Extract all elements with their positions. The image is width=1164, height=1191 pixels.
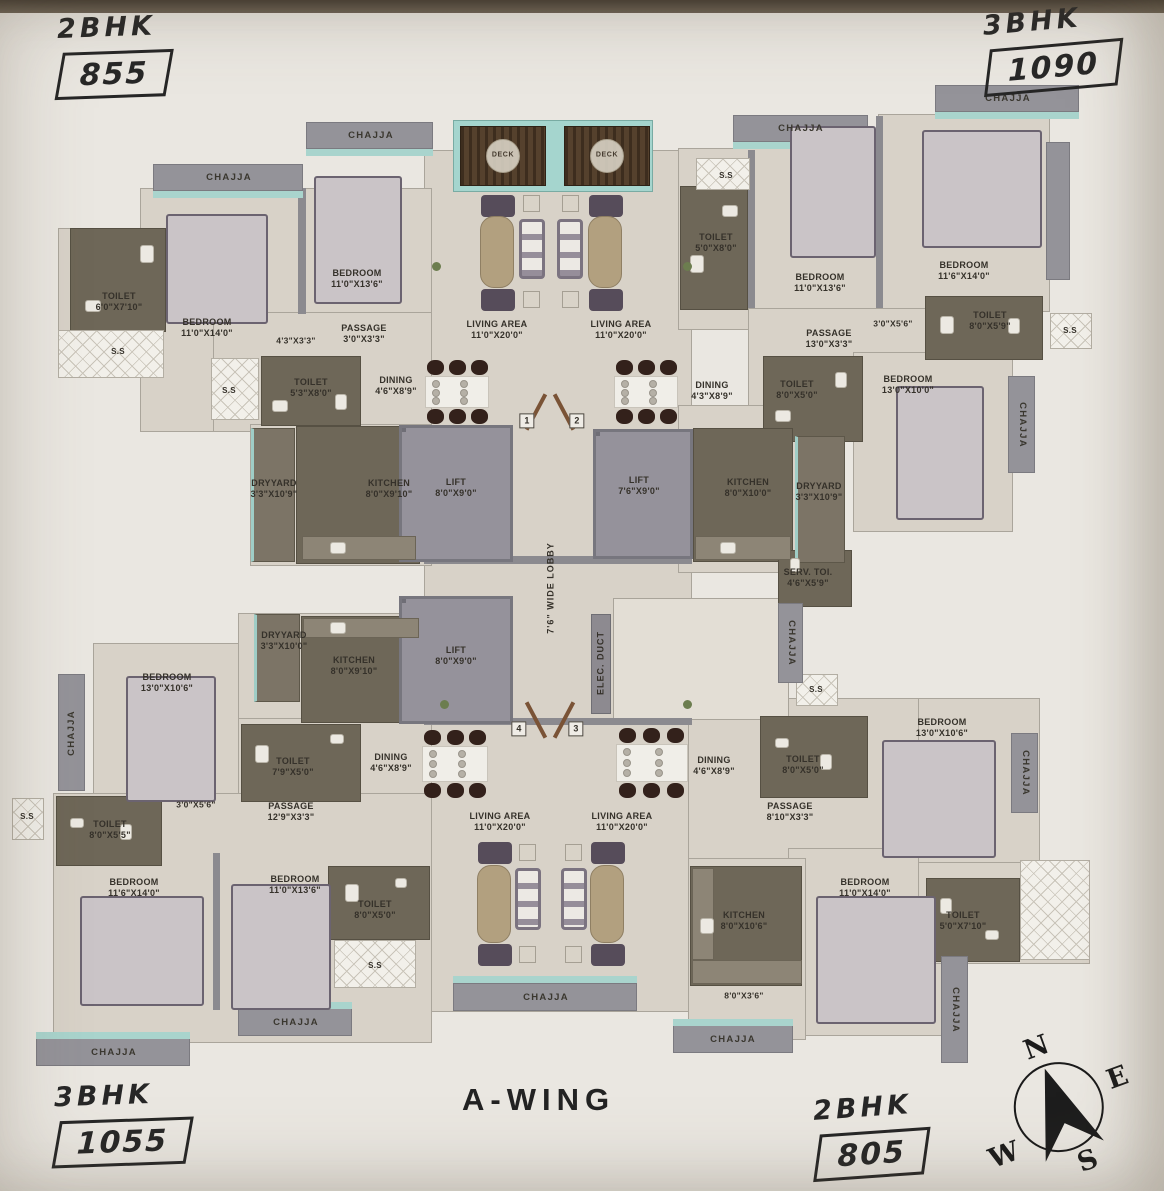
label-line: S.S xyxy=(111,347,125,357)
label-4-73: 4 xyxy=(511,721,526,736)
label-line: 6'0"X7'10" xyxy=(96,302,143,313)
label-line: DRYYARD xyxy=(796,481,843,492)
label-chajja-1: CHAJJA xyxy=(348,130,394,142)
label-line: CHAJJA xyxy=(66,710,78,756)
label-line: 11'6"X14'0" xyxy=(938,271,990,282)
label-line: 11'0"X20'0" xyxy=(467,330,528,341)
label-line: 11'0"X14'0" xyxy=(181,328,233,339)
label-line: 3'3"X10'9" xyxy=(251,489,298,500)
plan-labels-layer: CHAJJACHAJJACHAJJACHAJJACHAJJACHAJJACHAJ… xyxy=(0,0,1164,1191)
label-toilet-62: TOILET8'0"X5'0" xyxy=(782,754,824,777)
label-line: 11'0"X13'6" xyxy=(331,279,383,290)
label-line: PASSAGE xyxy=(806,328,853,339)
label-passage-39: PASSAGE13'0"X3'3" xyxy=(806,328,853,351)
label-line: TOILET xyxy=(290,377,332,388)
label-line: TOILET xyxy=(354,899,396,910)
label-line: 4'3"X3'3" xyxy=(276,336,315,347)
label-toilet-67: TOILET5'0"X7'10" xyxy=(940,910,987,933)
label-line: TOILET xyxy=(776,379,818,390)
label-chajja-5: CHAJJA xyxy=(273,1017,319,1029)
label-3-74: 3 xyxy=(568,721,583,736)
label-dining-52: DINING4'6"X8'9" xyxy=(370,752,412,775)
label-line: 8'0"X5'5" xyxy=(89,830,131,841)
label-bedroom-64: BEDROOM13'0"X10'6" xyxy=(916,717,968,740)
label-line: TOILET xyxy=(695,232,737,243)
label-deck-70: DECK xyxy=(596,152,618,161)
label-line: LIVING AREA xyxy=(467,319,528,330)
label-line: CHAJJA xyxy=(949,987,961,1033)
label-3-0-x5-6-40: 3'0"X5'6" xyxy=(873,319,912,330)
label-s-s-15: S.S xyxy=(719,171,733,181)
label-line: 8'0"X5'0" xyxy=(782,765,824,776)
annotation-bottom-left-unit: 3BHK 1055 xyxy=(54,1078,190,1169)
label-line: BEDROOM xyxy=(141,672,193,683)
label-line: 8'0"X5'9" xyxy=(969,321,1011,332)
label-line: BEDROOM xyxy=(108,877,160,888)
label-line: 13'0"X3'3" xyxy=(806,339,853,350)
label-line: S.S xyxy=(368,961,382,971)
label-line: BEDROOM xyxy=(938,260,990,271)
unit-area-bottom-left: 1055 xyxy=(76,1123,169,1161)
unit-area-top-left: 855 xyxy=(79,56,149,93)
label-line: DINING xyxy=(691,380,733,391)
label-s-s-17: S.S xyxy=(809,685,823,695)
label-bedroom-21: BEDROOM11'0"X14'0" xyxy=(181,317,233,340)
label-dining-61: DINING4'6"X8'9" xyxy=(693,755,735,778)
unit-area-box-bottom-right: 805 xyxy=(813,1127,930,1182)
label-dryyard-27: DRYYARD3'3"X10'9" xyxy=(251,478,298,501)
label-line: 8'0"X9'0" xyxy=(435,488,477,499)
label-line: ELEC. DUCT xyxy=(595,631,606,695)
label-line: 7'6"X9'0" xyxy=(618,486,660,497)
label-chajja-11: CHAJJA xyxy=(1019,750,1031,796)
label-line: 13'0"X10'0" xyxy=(882,385,934,396)
label-bedroom-38: BEDROOM11'6"X14'0" xyxy=(938,260,990,283)
label-line: 8'0"X3'6" xyxy=(724,991,763,1002)
label-bedroom-47: BEDROOM13'0"X10'6" xyxy=(141,672,193,695)
label-toilet-51: TOILET7'9"X5'0" xyxy=(272,756,314,779)
label-line: BEDROOM xyxy=(269,874,321,885)
label-line: LIFT xyxy=(435,645,477,656)
label-line: CHAJJA xyxy=(206,172,252,184)
label-line: S.S xyxy=(719,171,733,181)
label-s-s-14: S.S xyxy=(222,386,236,396)
annotation-top-left-unit: 2BHK 855 xyxy=(57,10,171,100)
label-1-71: 1 xyxy=(519,413,534,428)
label-toilet-25: TOILET5'3"X8'0" xyxy=(290,377,332,400)
label-living-area-59: LIVING AREA11'0"X20'0" xyxy=(470,811,531,834)
label-line: 12'9"X3'3" xyxy=(268,812,315,823)
label-dryyard-32: DRYYARD3'3"X10'9" xyxy=(796,481,843,504)
label-line: 7'6" WIDE LOBBY xyxy=(545,542,556,633)
label-toilet-36: TOILET5'0"X8'0" xyxy=(695,232,737,255)
label-chajja-10: CHAJJA xyxy=(785,620,797,666)
label-line: DECK xyxy=(492,152,514,161)
label-line: 7'9"X5'0" xyxy=(272,767,314,778)
label-line: BEDROOM xyxy=(794,272,846,283)
compass-west-label: W xyxy=(985,1135,1024,1175)
label-line: 3'0"X5'6" xyxy=(873,319,912,330)
label-living-area-33: LIVING AREA11'0"X20'0" xyxy=(467,319,528,342)
label-toilet-42: TOILET8'0"X5'0" xyxy=(776,379,818,402)
label-chajja-0: CHAJJA xyxy=(206,172,252,184)
label-chajja-2: CHAJJA xyxy=(778,123,824,135)
label-line: 11'0"X13'6" xyxy=(794,283,846,294)
label-passage-63: PASSAGE8'10"X3'3" xyxy=(767,801,814,824)
label-s-s-19: S.S xyxy=(20,812,34,822)
label-line: TOILET xyxy=(272,756,314,767)
label-line: LIFT xyxy=(435,477,477,488)
label-line: TOILET xyxy=(96,291,143,302)
label-line: 8'0"X10'0" xyxy=(725,488,772,499)
label-dining-26: DINING4'6"X8'9" xyxy=(375,375,417,398)
label-line: 8'0"X10'6" xyxy=(721,921,768,932)
label-line: 8'0"X9'10" xyxy=(331,666,378,677)
label-line: 8'0"X9'0" xyxy=(435,656,477,667)
label-lift-30: LIFT7'6"X9'0" xyxy=(618,475,660,498)
label-chajja-12: CHAJJA xyxy=(949,987,961,1033)
label-line: LIVING AREA xyxy=(470,811,531,822)
label-line: 11'0"X14'0" xyxy=(839,888,891,899)
label-lift-50: LIFT8'0"X9'0" xyxy=(435,645,477,668)
label-line: CHAJJA xyxy=(348,130,394,142)
label-bedroom-57: BEDROOM11'0"X13'6" xyxy=(269,874,321,897)
unit-type-top-left: 2BHK xyxy=(57,10,169,45)
label-chajja-4: CHAJJA xyxy=(523,992,569,1004)
label-2-72: 2 xyxy=(569,413,584,428)
label-line: LIVING AREA xyxy=(591,319,652,330)
label-line: CHAJJA xyxy=(785,620,797,666)
label-7-6-wide-lobby-46: 7'6" WIDE LOBBY xyxy=(545,542,556,633)
label-line: 11'0"X20'0" xyxy=(470,822,531,833)
label-line: 4 xyxy=(516,723,521,734)
label-line: 1 xyxy=(524,415,529,426)
label-line: TOILET xyxy=(782,754,824,765)
label-passage-23: PASSAGE3'0"X3'3" xyxy=(341,323,386,346)
label-line: CHAJJA xyxy=(273,1017,319,1029)
label-line: 3 xyxy=(573,723,578,734)
label-line: PASSAGE xyxy=(767,801,814,812)
label-line: CHAJJA xyxy=(1016,402,1028,448)
label-line: TOILET xyxy=(89,819,131,830)
label-line: CHAJJA xyxy=(778,123,824,135)
label-line: TOILET xyxy=(940,910,987,921)
label-line: S.S xyxy=(809,685,823,695)
label-elec-duct-45: ELEC. DUCT xyxy=(595,631,606,695)
label-line: 5'0"X7'10" xyxy=(940,921,987,932)
compass-south-label: S xyxy=(1073,1143,1102,1179)
label-line: 3'0"X3'3" xyxy=(341,334,386,345)
label-line: 11'0"X13'6" xyxy=(269,885,321,896)
label-line: KITCHEN xyxy=(331,655,378,666)
label-line: 5'3"X8'0" xyxy=(290,388,332,399)
unit-type-bottom-right: 2BHK xyxy=(812,1088,925,1127)
label-line: 4'6"X8'9" xyxy=(370,763,412,774)
label-line: 3'3"X10'0" xyxy=(261,641,308,652)
unit-area-top-right: 1090 xyxy=(1008,46,1100,89)
annotation-top-right-unit: 3BHK 1090 xyxy=(982,0,1122,97)
label-line: 11'6"X14'0" xyxy=(108,888,160,899)
label-line: 5'0"X8'0" xyxy=(695,243,737,254)
label-line: 13'0"X10'6" xyxy=(141,683,193,694)
label-line: LIVING AREA xyxy=(592,811,653,822)
label-serv-toi-44: SERV. TOI.4'6"X5'9" xyxy=(784,567,833,590)
label-chajja-7: CHAJJA xyxy=(710,1034,756,1046)
compass-north-label: N xyxy=(1020,1029,1054,1067)
label-line: CHAJJA xyxy=(91,1047,137,1059)
label-lift-29: LIFT8'0"X9'0" xyxy=(435,477,477,500)
label-line: DRYYARD xyxy=(251,478,298,489)
label-line: BEDROOM xyxy=(181,317,233,328)
label-4-3-x3-3-24: 4'3"X3'3" xyxy=(276,336,315,347)
label-line: 8'0"X5'0" xyxy=(776,390,818,401)
unit-type-bottom-left: 3BHK xyxy=(54,1078,189,1114)
label-line: DINING xyxy=(693,755,735,766)
label-living-area-34: LIVING AREA11'0"X20'0" xyxy=(591,319,652,342)
label-line: BEDROOM xyxy=(882,374,934,385)
label-s-s-18: S.S xyxy=(368,961,382,971)
label-line: KITCHEN xyxy=(366,478,413,489)
label-line: PASSAGE xyxy=(341,323,386,334)
label-passage-53: PASSAGE12'9"X3'3" xyxy=(268,801,315,824)
label-line: DINING xyxy=(375,375,417,386)
label-chajja-8: CHAJJA xyxy=(66,710,78,756)
unit-area-bottom-right: 805 xyxy=(837,1135,906,1175)
label-line: CHAJJA xyxy=(710,1034,756,1046)
label-s-s-16: S.S xyxy=(1063,326,1077,336)
label-bedroom-43: BEDROOM13'0"X10'0" xyxy=(882,374,934,397)
label-chajja-9: CHAJJA xyxy=(1016,402,1028,448)
label-toilet-41: TOILET8'0"X5'9" xyxy=(969,310,1011,333)
label-kitchen-31: KITCHEN8'0"X10'0" xyxy=(725,477,772,500)
label-toilet-20: TOILET6'0"X7'10" xyxy=(96,291,143,314)
label-line: 3'0"X5'6" xyxy=(176,800,215,811)
label-line: BEDROOM xyxy=(916,717,968,728)
label-line: 4'6"X5'9" xyxy=(784,578,833,589)
label-line: S.S xyxy=(1063,326,1077,336)
label-chajja-6: CHAJJA xyxy=(91,1047,137,1059)
label-line: LIFT xyxy=(618,475,660,486)
label-line: 8'0"X5'0" xyxy=(354,910,396,921)
annotation-bottom-right-unit: 2BHK 805 xyxy=(812,1088,928,1182)
label-line: BEDROOM xyxy=(839,877,891,888)
label-toilet-58: TOILET8'0"X5'0" xyxy=(354,899,396,922)
floor-plan-photo: CHAJJACHAJJACHAJJACHAJJACHAJJACHAJJACHAJ… xyxy=(0,0,1164,1191)
label-line: DRYYARD xyxy=(261,630,308,641)
label-line: TOILET xyxy=(969,310,1011,321)
unit-area-box-bottom-left: 1055 xyxy=(52,1116,194,1168)
label-bedroom-56: BEDROOM11'6"X14'0" xyxy=(108,877,160,900)
label-line: 2 xyxy=(574,415,579,426)
label-dryyard-48: DRYYARD3'3"X10'0" xyxy=(261,630,308,653)
unit-area-box-top-left: 855 xyxy=(55,49,174,100)
label-kitchen-28: KITCHEN8'0"X9'10" xyxy=(366,478,413,501)
label-dining-35: DINING4'3"X8'9" xyxy=(691,380,733,403)
label-line: CHAJJA xyxy=(1019,750,1031,796)
label-line: 11'0"X20'0" xyxy=(592,822,653,833)
compass-east-label: E xyxy=(1103,1060,1133,1096)
label-line: 4'6"X8'9" xyxy=(693,766,735,777)
label-line: 4'6"X8'9" xyxy=(375,386,417,397)
label-bedroom-22: BEDROOM11'0"X13'6" xyxy=(331,268,383,291)
label-line: 13'0"X10'6" xyxy=(916,728,968,739)
label-kitchen-66: KITCHEN8'0"X10'6" xyxy=(721,910,768,933)
label-bedroom-65: BEDROOM11'0"X14'0" xyxy=(839,877,891,900)
label-bedroom-37: BEDROOM11'0"X13'6" xyxy=(794,272,846,295)
label-8-0-x3-6-68: 8'0"X3'6" xyxy=(724,991,763,1002)
label-line: DECK xyxy=(596,152,618,161)
label-line: CHAJJA xyxy=(523,992,569,1004)
label-line: 8'0"X9'10" xyxy=(366,489,413,500)
label-line: DINING xyxy=(370,752,412,763)
label-line: 8'10"X3'3" xyxy=(767,812,814,823)
label-line: PASSAGE xyxy=(268,801,315,812)
label-line: 4'3"X8'9" xyxy=(691,391,733,402)
label-line: S.S xyxy=(222,386,236,396)
label-line: KITCHEN xyxy=(721,910,768,921)
wing-title: A-WING xyxy=(462,1082,615,1118)
label-kitchen-49: KITCHEN8'0"X9'10" xyxy=(331,655,378,678)
label-line: BEDROOM xyxy=(331,268,383,279)
label-living-area-60: LIVING AREA11'0"X20'0" xyxy=(592,811,653,834)
label-line: 3'3"X10'9" xyxy=(796,492,843,503)
label-3-0-x5-6-54: 3'0"X5'6" xyxy=(176,800,215,811)
label-s-s-13: S.S xyxy=(111,347,125,357)
label-line: KITCHEN xyxy=(725,477,772,488)
label-deck-69: DECK xyxy=(492,152,514,161)
label-line: SERV. TOI. xyxy=(784,567,833,578)
label-line: S.S xyxy=(20,812,34,822)
label-toilet-55: TOILET8'0"X5'5" xyxy=(89,819,131,842)
label-line: 11'0"X20'0" xyxy=(591,330,652,341)
